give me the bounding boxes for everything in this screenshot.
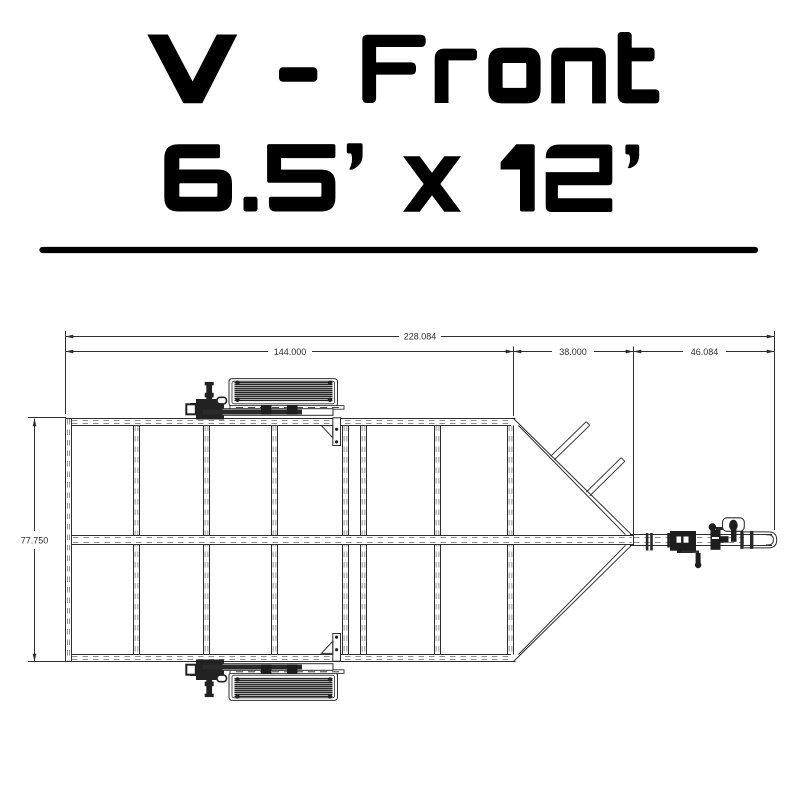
- svg-text:144.000: 144.000: [274, 347, 307, 357]
- svg-text:228.084: 228.084: [404, 332, 437, 342]
- svg-text:77.750: 77.750: [21, 535, 49, 545]
- svg-text:38.000: 38.000: [559, 347, 587, 357]
- svg-text:46.084: 46.084: [691, 347, 719, 357]
